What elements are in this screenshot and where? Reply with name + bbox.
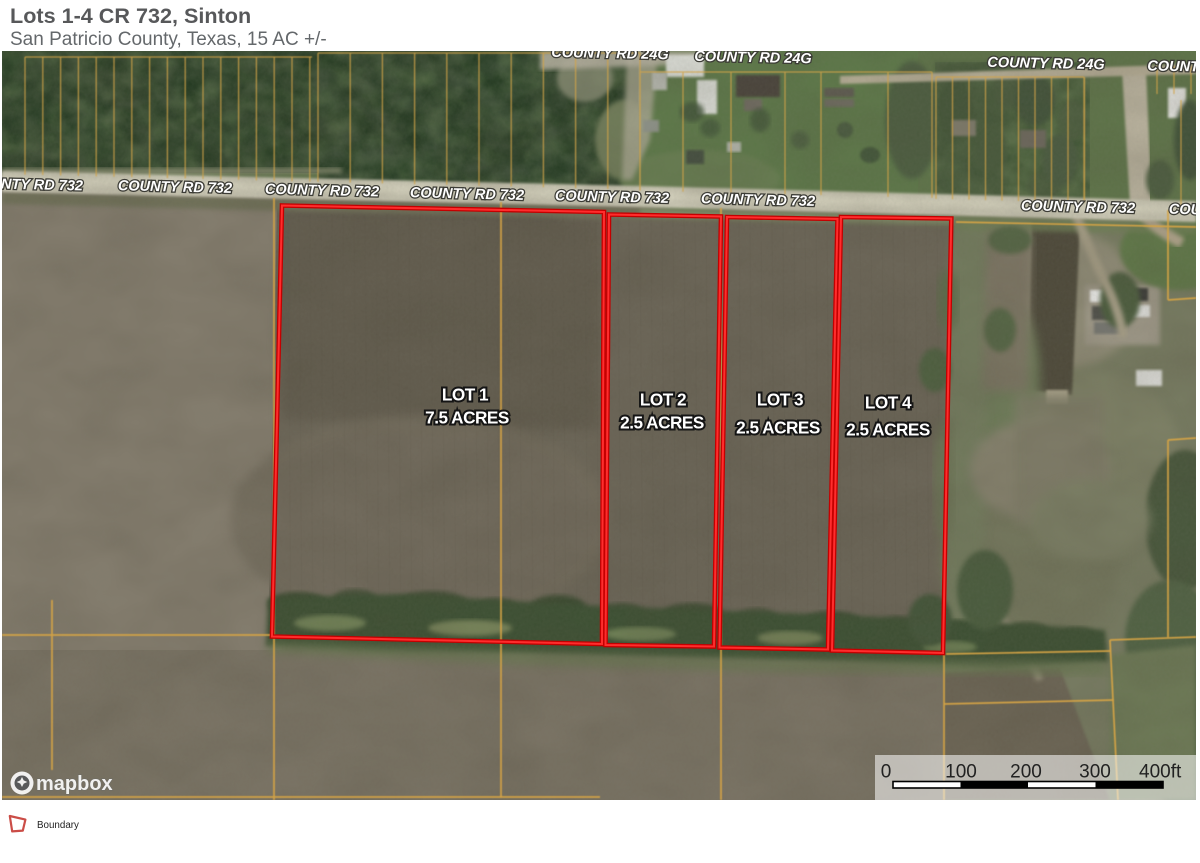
svg-text:7.5 ACRES: 7.5 ACRES bbox=[425, 408, 509, 428]
svg-text:COUNTY: COUNTY bbox=[1147, 58, 1196, 75]
svg-text:COUNTY RD 732: COUNTY RD 732 bbox=[1021, 198, 1136, 217]
svg-text:2.5 ACRES: 2.5 ACRES bbox=[620, 413, 704, 433]
svg-text:COUNTY RD 732: COUNTY RD 732 bbox=[555, 188, 670, 207]
svg-text:LOT 1: LOT 1 bbox=[442, 385, 489, 405]
svg-text:LOT 4: LOT 4 bbox=[865, 393, 912, 413]
svg-text:100: 100 bbox=[945, 762, 977, 783]
svg-text:COUNTY RD 732: COUNTY RD 732 bbox=[410, 185, 525, 204]
svg-text:0: 0 bbox=[881, 762, 892, 783]
svg-text:COUNTY RD 732: COUNTY RD 732 bbox=[701, 191, 816, 210]
svg-text:COUNTY RD 732: COUNTY RD 732 bbox=[265, 182, 380, 201]
svg-text:300: 300 bbox=[1079, 762, 1111, 783]
svg-text:2.5 ACRES: 2.5 ACRES bbox=[846, 420, 930, 440]
svg-text:COU: COU bbox=[1169, 202, 1196, 219]
svg-text:COUNTY RD 24G: COUNTY RD 24G bbox=[694, 51, 812, 67]
svg-text:200: 200 bbox=[1010, 762, 1042, 783]
svg-text:mapbox: mapbox bbox=[36, 773, 113, 795]
svg-text:400ft: 400ft bbox=[1139, 762, 1182, 783]
svg-text:NTY RD 732: NTY RD 732 bbox=[2, 177, 83, 195]
svg-text:2.5 ACRES: 2.5 ACRES bbox=[736, 418, 820, 438]
svg-text:COUNTY RD 24G: COUNTY RD 24G bbox=[987, 55, 1105, 73]
svg-text:LOT 2: LOT 2 bbox=[640, 390, 686, 410]
svg-text:LOT 3: LOT 3 bbox=[757, 390, 803, 410]
svg-text:COUNTY RD 732: COUNTY RD 732 bbox=[118, 178, 233, 197]
